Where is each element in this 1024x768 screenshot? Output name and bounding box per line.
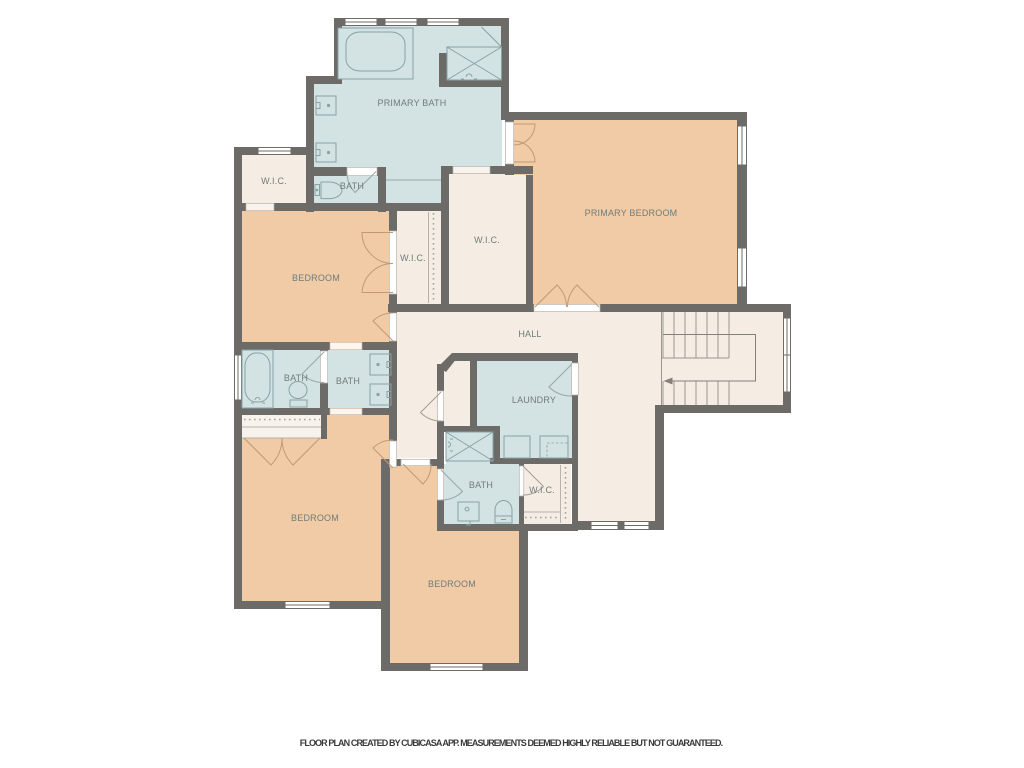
svg-text:PRIMARY BATH: PRIMARY BATH	[378, 98, 447, 108]
svg-text:FLOOR PLAN CREATED BY CUBICASA: FLOOR PLAN CREATED BY CUBICASA APP. MEAS…	[300, 738, 723, 748]
svg-text:BATH: BATH	[340, 181, 364, 191]
svg-text:BEDROOM: BEDROOM	[428, 579, 476, 589]
svg-text:W.I.C.: W.I.C.	[261, 176, 287, 186]
svg-text:LAUNDRY: LAUNDRY	[512, 395, 556, 405]
svg-text:BEDROOM: BEDROOM	[292, 273, 340, 283]
svg-text:BEDROOM: BEDROOM	[291, 513, 339, 523]
svg-text:BATH: BATH	[284, 373, 308, 383]
svg-text:W.I.C.: W.I.C.	[529, 485, 555, 495]
svg-text:HALL: HALL	[518, 329, 541, 339]
svg-text:W.I.C.: W.I.C.	[400, 253, 426, 263]
svg-text:PRIMARY BEDROOM: PRIMARY BEDROOM	[585, 208, 678, 218]
svg-text:W.I.C.: W.I.C.	[474, 235, 500, 245]
svg-text:BATH: BATH	[469, 480, 493, 490]
svg-text:BATH: BATH	[336, 376, 360, 386]
